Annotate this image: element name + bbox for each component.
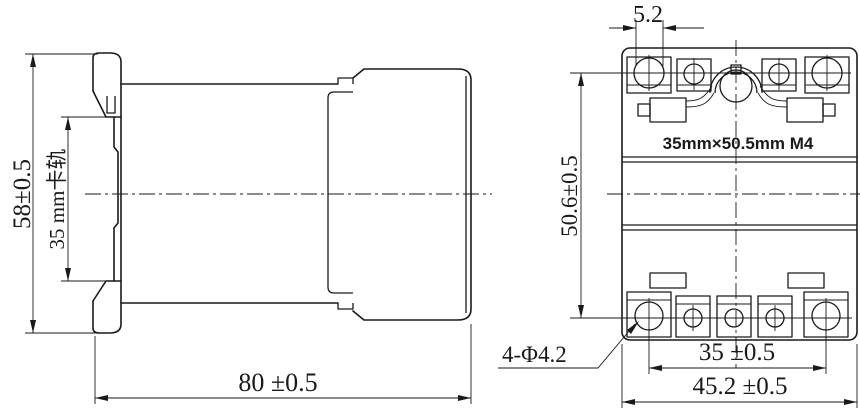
mid-section-top <box>328 92 353 98</box>
front-block <box>353 69 471 320</box>
mid-section-bottom <box>328 287 353 293</box>
mount-spec-label: 35mm×50.5mm M4 <box>663 134 814 153</box>
side-view: 58±0.5 35 mm卡轨 80 ±0.5 <box>9 53 492 404</box>
terminal-tab <box>788 273 824 288</box>
clip-bottom-hook <box>93 281 121 301</box>
arrowhead <box>663 25 676 31</box>
dimension-drawing: 58±0.5 35 mm卡轨 80 ±0.5 <box>0 0 860 415</box>
dim-height-label: 58±0.5 <box>9 159 36 229</box>
dim-vpitch-label: 50.6±0.5 <box>557 155 582 237</box>
bracket-wing <box>758 93 787 107</box>
clip-bottom-block <box>93 301 121 333</box>
clip-strip-inner-edge <box>114 117 118 281</box>
dim-hpitch-label: 35 ±0.5 <box>699 339 775 366</box>
rear-top-nub <box>338 78 353 84</box>
terminal-tab <box>650 273 686 288</box>
arrowhead <box>622 399 635 405</box>
arrowhead <box>65 117 71 130</box>
bracket-block <box>787 98 823 122</box>
clip-top-hook-detail <box>107 96 115 113</box>
arrowhead <box>30 54 36 67</box>
bracket-tab <box>823 104 835 116</box>
arrowhead <box>578 73 584 86</box>
bracket-block <box>650 98 686 122</box>
arrowhead <box>578 305 584 318</box>
dim-rail-label: 35 mm卡轨 <box>45 149 69 250</box>
dim-depth-label: 80 ±0.5 <box>238 368 317 397</box>
arrowhead <box>95 395 108 401</box>
dim-terminal-label: 5.2 <box>633 2 663 28</box>
arrowhead <box>844 399 857 405</box>
dim-width-label: 45.2 ±0.5 <box>693 373 788 400</box>
terminal-cell <box>717 296 751 337</box>
arrowhead <box>30 320 36 333</box>
arrowhead <box>458 395 471 401</box>
bracket-wing <box>686 86 712 101</box>
front-view: 35mm×50.5mm M4 <box>498 2 860 408</box>
din-rail-clip <box>93 53 121 333</box>
drawing-canvas: 58±0.5 35 mm卡轨 80 ±0.5 <box>0 0 860 415</box>
rear-bottom-nub <box>338 303 353 309</box>
arrowhead <box>65 268 71 281</box>
front-block-outline <box>353 69 471 320</box>
bracket-wing <box>760 86 787 101</box>
rear-body <box>121 78 353 309</box>
bracket-wing <box>686 93 714 107</box>
bottom-terminal-row <box>627 273 848 337</box>
side-view-dimensions: 58±0.5 35 mm卡轨 80 ±0.5 <box>9 54 471 404</box>
arrowhead <box>813 365 826 371</box>
bracket-tab <box>638 104 650 116</box>
arrowhead <box>649 365 662 371</box>
clip-top-block <box>93 53 121 91</box>
dim-holes-label: 4-Φ4.2 <box>502 342 567 367</box>
